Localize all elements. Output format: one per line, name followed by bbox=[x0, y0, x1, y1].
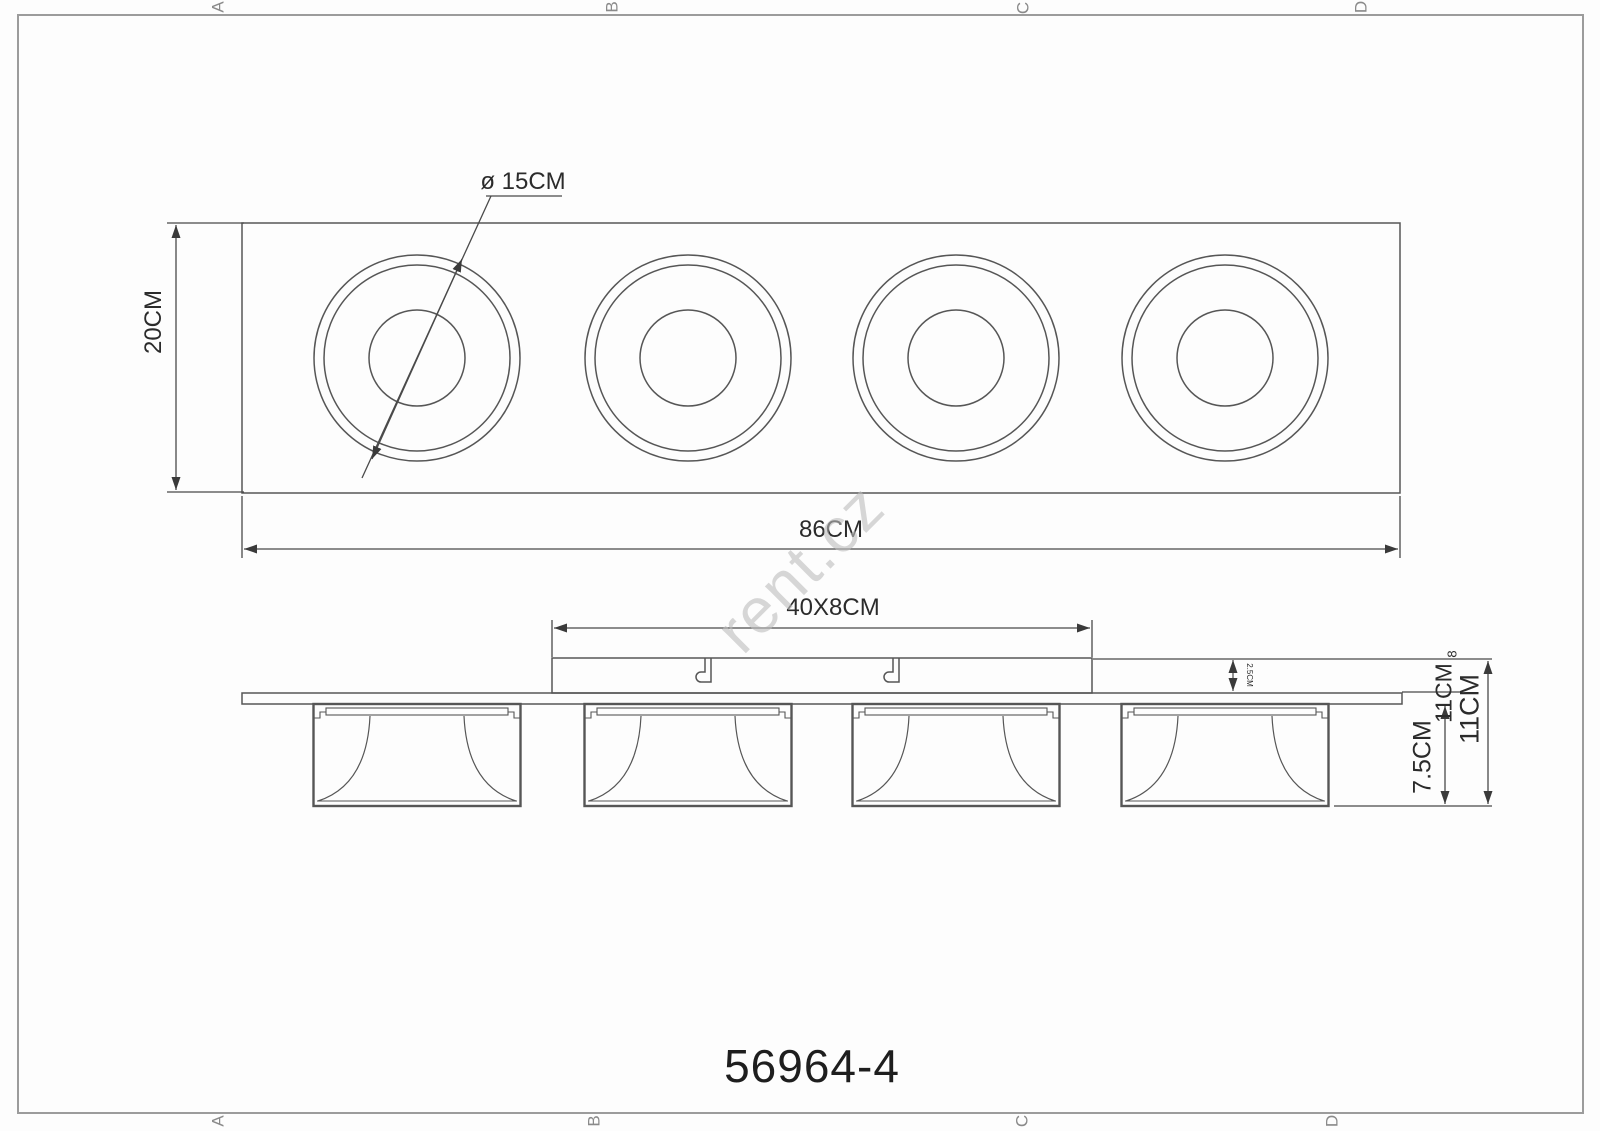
ceiling-plate bbox=[242, 693, 1402, 704]
spot-circle-4 bbox=[1122, 255, 1328, 461]
border-marker-bottom-b: B bbox=[586, 1115, 603, 1126]
spot-circle-2 bbox=[585, 255, 791, 461]
dim-20cm bbox=[167, 223, 244, 492]
label-head-depth: 7.5CM bbox=[1411, 720, 1436, 794]
border-marker-top-b: B bbox=[604, 1, 621, 12]
drawing-linework bbox=[0, 0, 1600, 1131]
keyhole-slot-1 bbox=[696, 658, 711, 682]
border-marker-top-d: D bbox=[1353, 1, 1370, 13]
lamp-housing-4 bbox=[1122, 704, 1329, 806]
keyhole-slot-2 bbox=[884, 658, 899, 682]
dim-diameter-leader bbox=[362, 196, 562, 478]
label-total-height: 11CM bbox=[1457, 674, 1484, 744]
top-view bbox=[242, 223, 1400, 493]
label-stray-eight: 8 bbox=[1446, 650, 1459, 657]
technical-drawing-page: ø 15CM 20CM 86CM 40X8CM 2.5CM 8 11CM 11C… bbox=[0, 0, 1600, 1131]
lamp-housing-3 bbox=[853, 704, 1060, 806]
label-total-height-dup: 11CM bbox=[1433, 663, 1456, 723]
mounting-bracket bbox=[552, 658, 1092, 693]
sheet-frame bbox=[18, 15, 1583, 1113]
border-marker-top-c: C bbox=[1015, 2, 1032, 14]
border-marker-bottom-c: C bbox=[1014, 1115, 1031, 1127]
label-body-width: 86CM bbox=[799, 518, 863, 542]
label-bracket-thickness: 2.5CM bbox=[1245, 663, 1253, 687]
label-body-height: 20CM bbox=[142, 290, 166, 354]
border-marker-bottom-d: D bbox=[1324, 1115, 1341, 1127]
lamp-housing-1 bbox=[314, 704, 521, 806]
lamp-housing-2 bbox=[585, 704, 792, 806]
fixture-outline-top bbox=[242, 223, 1400, 493]
border-marker-bottom-a: A bbox=[210, 1115, 227, 1126]
side-view bbox=[242, 658, 1402, 704]
label-spot-diameter: ø 15CM bbox=[480, 170, 565, 194]
spot-circle-3 bbox=[853, 255, 1059, 461]
border-marker-top-a: A bbox=[210, 1, 227, 12]
label-bracket-size: 40X8CM bbox=[786, 596, 879, 620]
dim-40x8cm bbox=[552, 620, 1092, 657]
lamp-housings bbox=[314, 704, 1329, 806]
model-number: 56964-4 bbox=[724, 1043, 900, 1089]
